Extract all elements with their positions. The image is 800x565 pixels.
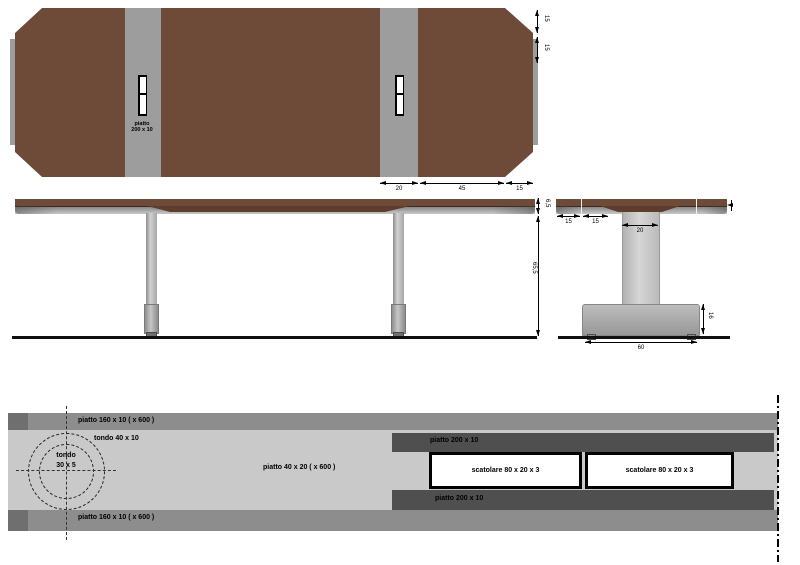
dim-label: 45: [420, 186, 504, 193]
dim-label: 15: [542, 44, 549, 51]
dim-line: [380, 183, 418, 184]
profile-plate-bottom-label: piatto 200 x 10: [435, 495, 483, 502]
profile-tube-left-label: scatolare 80 x 20 x 3: [472, 467, 540, 474]
profile-band-top-label: piatto 160 x 10 ( x 600 ): [78, 417, 154, 424]
dim-line: [420, 183, 504, 184]
dim-line: [537, 10, 538, 33]
dim-line: [583, 216, 608, 217]
side-view-end-cap-right: [493, 206, 535, 214]
dim-label: 60: [585, 345, 697, 352]
profile-plate-top-200x10: piatto 200 x 10: [392, 433, 774, 452]
end-view-joint-line: [581, 199, 582, 214]
side-view-end-cap-left: [15, 206, 57, 214]
dim-line: [506, 183, 533, 184]
dim-arrow: [727, 203, 733, 207]
plan-end-cap-left: [10, 39, 15, 145]
side-view-leg-right: [393, 213, 404, 304]
profile-band-cap: [8, 413, 28, 430]
profile-tube-right-label: scatolare 80 x 20 x 3: [626, 467, 694, 474]
plan-view-tabletop: [15, 8, 533, 177]
profile-tube-right: scatolare 80 x 20 x 3: [585, 452, 734, 489]
dim-line: [557, 216, 580, 217]
dim-label: 6,5: [543, 199, 550, 207]
profile-flat-bar-label: piatto 40 x 20 ( x 600 ): [263, 464, 335, 471]
end-view-end-cap-right: [703, 206, 727, 214]
side-view-leg-left: [146, 213, 157, 304]
plan-stripe-label: piatto 200 x 10: [118, 121, 166, 133]
side-view-apron: [147, 206, 410, 212]
dim-label: 15: [542, 15, 549, 22]
profile-ring-inner-label: tondo: [46, 452, 86, 459]
symmetry-line: [777, 395, 779, 562]
dim-label: 65,5: [530, 262, 537, 274]
connector-plate-icon: [395, 75, 404, 116]
dim-line: [703, 304, 704, 334]
dim-label: 20: [380, 186, 418, 193]
side-view-foot-right: [391, 304, 406, 334]
side-view-tabletop: [15, 199, 535, 207]
ground-line: [12, 336, 537, 339]
connector-plate-icon: [138, 75, 147, 116]
ground-line: [558, 336, 730, 339]
dim-line: [537, 37, 538, 63]
profile-band-cap: [8, 510, 28, 531]
profile-ring-inner-label: 30 x 5: [46, 462, 86, 469]
profile-ring-outer-label: tondo 40 x 10: [94, 435, 139, 442]
dim-line: [585, 342, 697, 343]
dim-line: [538, 216, 539, 336]
profile-band-bottom-160x10: piatto 160 x 10 ( x 600 ): [8, 510, 778, 531]
dim-line: [538, 198, 539, 214]
profile-plate-bottom-200x10: piatto 200 x 10: [392, 490, 774, 510]
centerline-horizontal: [16, 470, 116, 471]
side-view-foot-left: [144, 304, 159, 334]
dim-label: 15: [557, 219, 580, 226]
profile-plate-top-label: piatto 200 x 10: [430, 437, 478, 444]
centerline-vertical: [66, 406, 67, 540]
dim-label: 15: [583, 219, 608, 226]
end-view-end-cap-left: [556, 206, 580, 214]
profile-tube-left: scatolare 80 x 20 x 3: [429, 452, 582, 489]
end-view-base: [582, 304, 700, 336]
dim-line: [622, 225, 658, 226]
dim-label: 16: [706, 312, 713, 319]
profile-band-bottom-label: piatto 160 x 10 ( x 600 ): [78, 514, 154, 521]
profile-band-top-160x10: piatto 160 x 10 ( x 600 ): [8, 413, 778, 430]
dim-label: 20: [622, 228, 658, 235]
dim-label: 15: [506, 186, 533, 193]
end-view-joint-line: [696, 199, 697, 214]
